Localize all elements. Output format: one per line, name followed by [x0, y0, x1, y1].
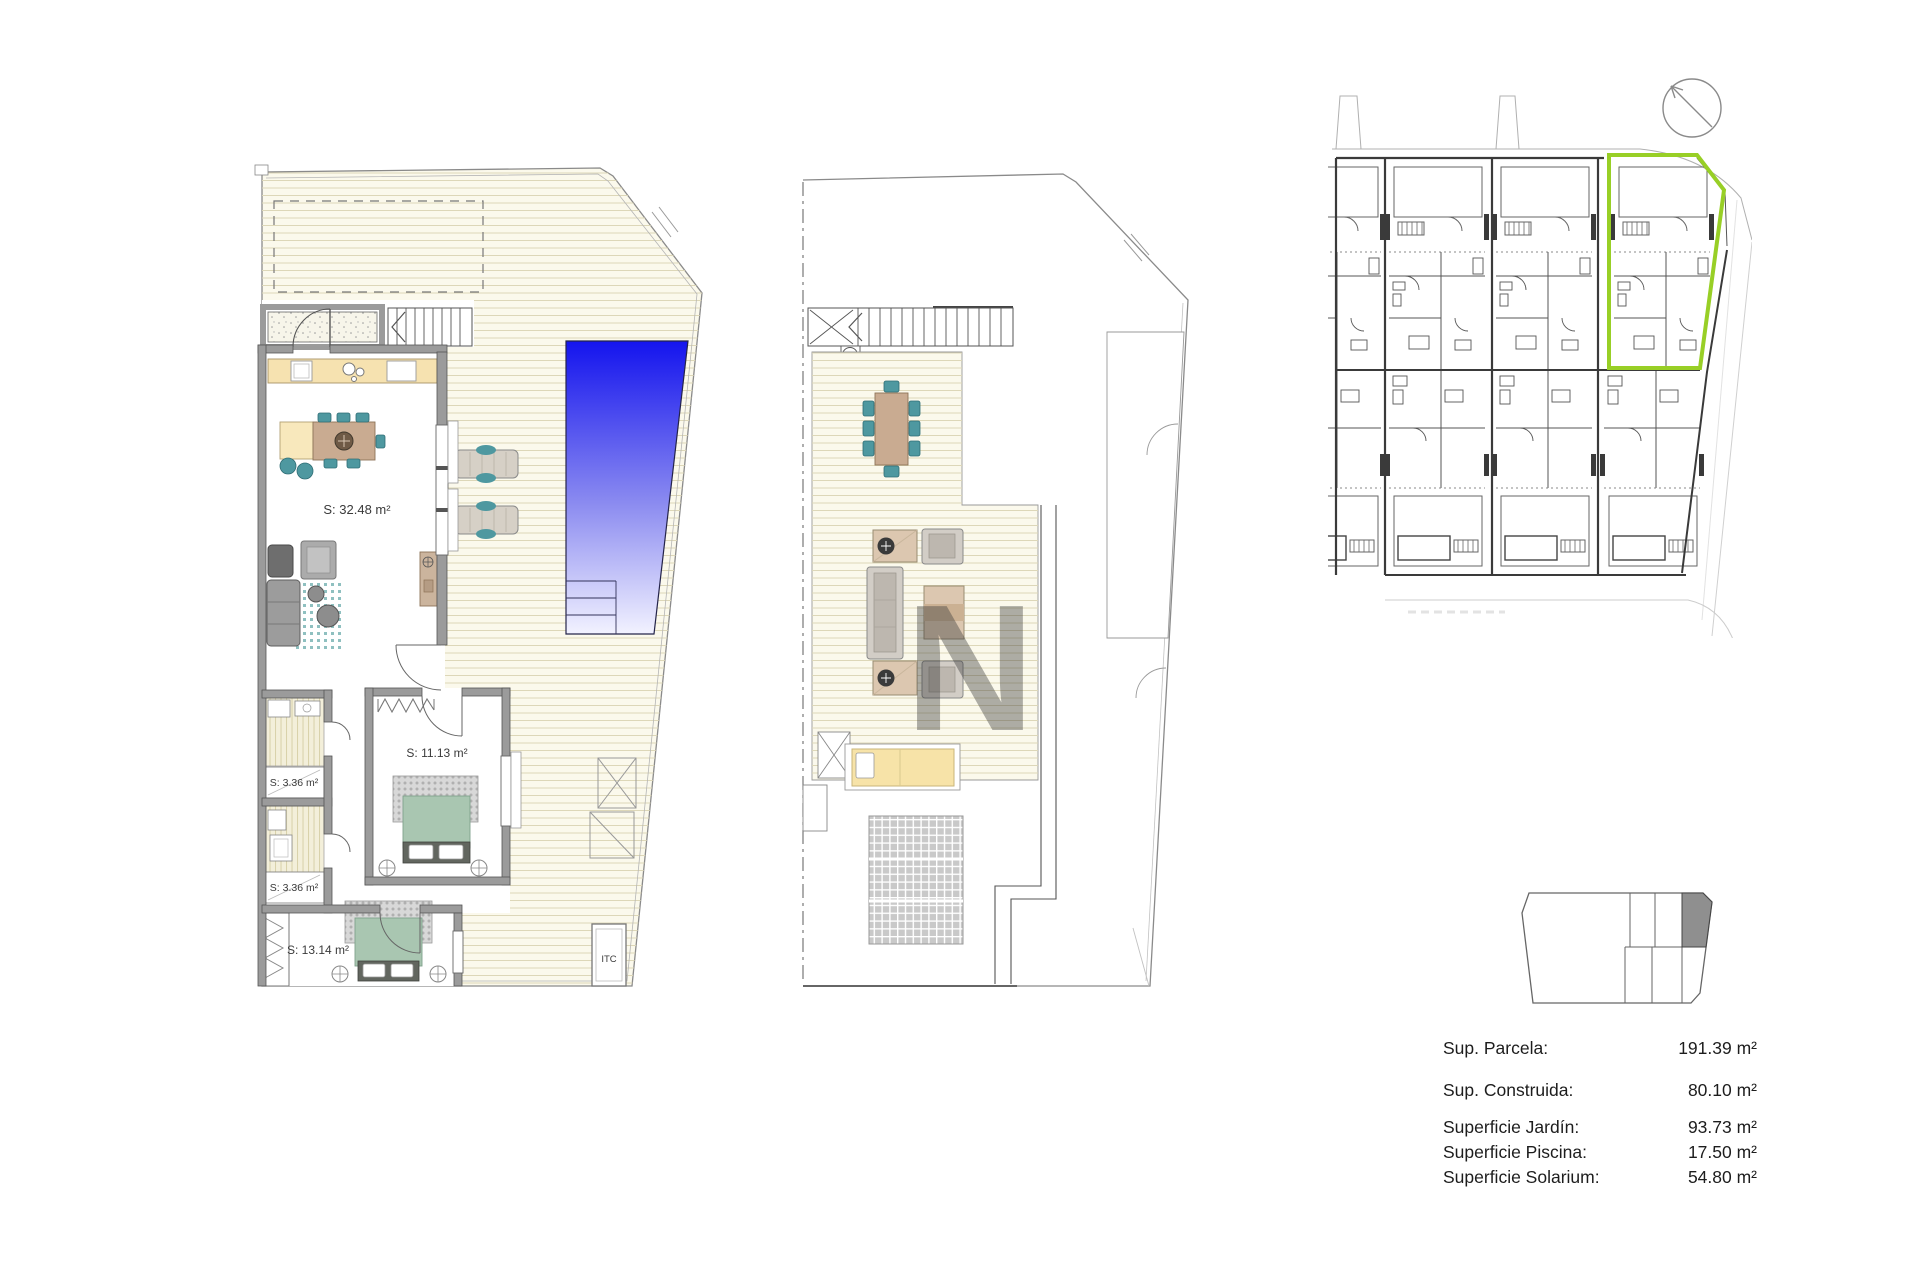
- room-label-bathroom1: S: 3.36 m²: [270, 777, 319, 789]
- summary-value: 191.39 m²: [1678, 1038, 1757, 1059]
- summary-label: Superficie Jardín:: [1443, 1117, 1579, 1138]
- summary-label: Sup. Construida:: [1443, 1080, 1573, 1101]
- summary-row-piscina: Superficie Piscina: 17.50 m²: [1443, 1142, 1757, 1163]
- summary-row-jardin: Superficie Jardín: 93.73 m²: [1443, 1117, 1757, 1138]
- site-plan: [1281, 79, 1752, 648]
- ground-floor-plan: ITC: [255, 165, 715, 995]
- window: [453, 931, 463, 973]
- summary-label: Superficie Solarium:: [1443, 1167, 1600, 1188]
- summary-value: 54.80 m²: [1688, 1167, 1757, 1188]
- sun-lounger: [455, 445, 518, 483]
- itc-closet: ITC: [592, 924, 626, 986]
- solarium-plan: N: [803, 174, 1188, 986]
- summary-row-construida: Sup. Construida: 80.10 m²: [1443, 1080, 1757, 1101]
- window: [501, 752, 521, 828]
- summary-label: Superficie Piscina:: [1443, 1142, 1587, 1163]
- room-label-bedroom1: S: 11.13 m²: [406, 746, 467, 760]
- summary-value: 80.10 m²: [1688, 1080, 1757, 1101]
- room-label-bedroom2: S: 13.14 m²: [287, 943, 349, 957]
- room-label-living: S: 32.48 m²: [323, 502, 391, 517]
- room-label-bathroom2: S: 3.36 m²: [270, 882, 319, 894]
- solar-panel-grid: [869, 816, 963, 944]
- svg-text:N: N: [905, 568, 1035, 769]
- summary-label: Sup. Parcela:: [1443, 1038, 1548, 1059]
- sun-lounger: [455, 501, 518, 539]
- summary-row-parcela: Sup. Parcela: 191.39 m²: [1443, 1038, 1757, 1059]
- summary-row-solarium: Superficie Solarium: 54.80 m²: [1443, 1167, 1757, 1188]
- floor-plan-sheet: ITC: [0, 0, 1920, 1280]
- itc-label: ITC: [601, 954, 616, 965]
- living-room-set: [267, 541, 342, 652]
- summary-value: 93.73 m²: [1688, 1117, 1757, 1138]
- exterior-stairs: [388, 308, 472, 346]
- kitchen-counter: [268, 359, 437, 383]
- summary-value: 17.50 m²: [1688, 1142, 1757, 1163]
- north-arrow-icon: [1663, 79, 1721, 137]
- key-plan-highlighted-unit: [1682, 893, 1712, 947]
- watermark: N: [905, 568, 1035, 769]
- tv-cabinet: [420, 552, 437, 606]
- location-key-plan: [1522, 893, 1712, 1003]
